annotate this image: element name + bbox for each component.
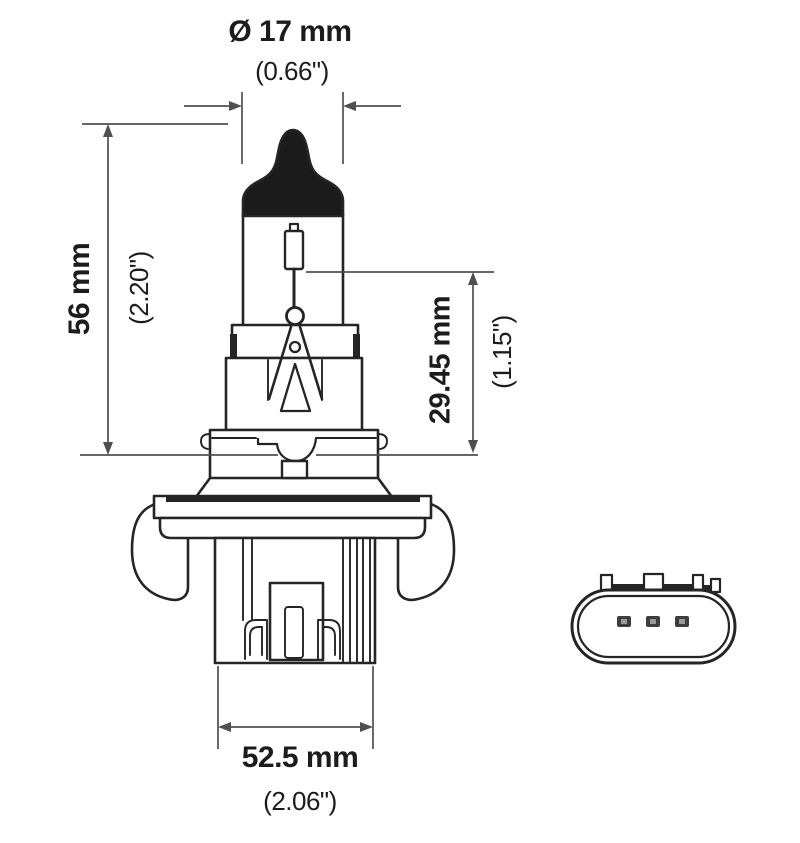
bulb-dimension-diagram: Ø 17 mm (0.66") 56 mm (2.20") 29.45 mm (… (0, 0, 800, 843)
base-right-contact-bar (353, 334, 360, 358)
flange-taper-right (378, 478, 392, 497)
filament-wire-loop (287, 308, 304, 325)
length-label-imperial: (2.20") (126, 251, 152, 325)
width-label-metric: 52.5 mm (242, 743, 359, 773)
width-label-imperial: (2.06") (263, 788, 337, 814)
technical-drawing-canvas (0, 0, 800, 843)
connector-pin-1-center (621, 619, 627, 624)
diameter-label-metric: Ø 17 mm (228, 17, 351, 47)
focal-arrowhead-top (468, 272, 478, 285)
collar-key-slot (282, 461, 307, 478)
length-arrowhead-bottom (103, 442, 113, 455)
flange-gasket-stripe (166, 495, 420, 502)
connector-pin-2-center (650, 619, 656, 624)
contact-pivot-hole (290, 342, 300, 352)
flange-taper-left (196, 478, 210, 497)
diameter-arrowhead-left (229, 101, 242, 111)
length-arrowhead-top (103, 124, 113, 137)
connector-body (215, 538, 375, 663)
bulb-side-view (132, 130, 454, 663)
diameter-label-imperial: (0.66") (255, 58, 329, 84)
connector-tab-center (644, 574, 663, 591)
focal-label-imperial: (1.15") (489, 315, 515, 389)
width-arrowhead-right (360, 722, 373, 732)
filament-capsule (285, 231, 303, 269)
bulb-black-tip (243, 130, 343, 216)
collar-left-ear (201, 434, 210, 449)
length-label-metric: 56 mm (65, 243, 95, 336)
connector-front-view (572, 574, 735, 663)
focal-label-metric: 29.45 mm (427, 296, 456, 424)
connector-tab-4 (711, 579, 720, 592)
flange-lower-band (160, 518, 425, 538)
diameter-arrowhead-right (343, 101, 356, 111)
collar-right-ear (378, 434, 387, 449)
base-left-contact-bar (230, 334, 237, 358)
focal-arrowhead-bottom (468, 440, 478, 453)
width-arrowhead-left (218, 722, 231, 732)
connector-pin-3-center (679, 619, 685, 624)
